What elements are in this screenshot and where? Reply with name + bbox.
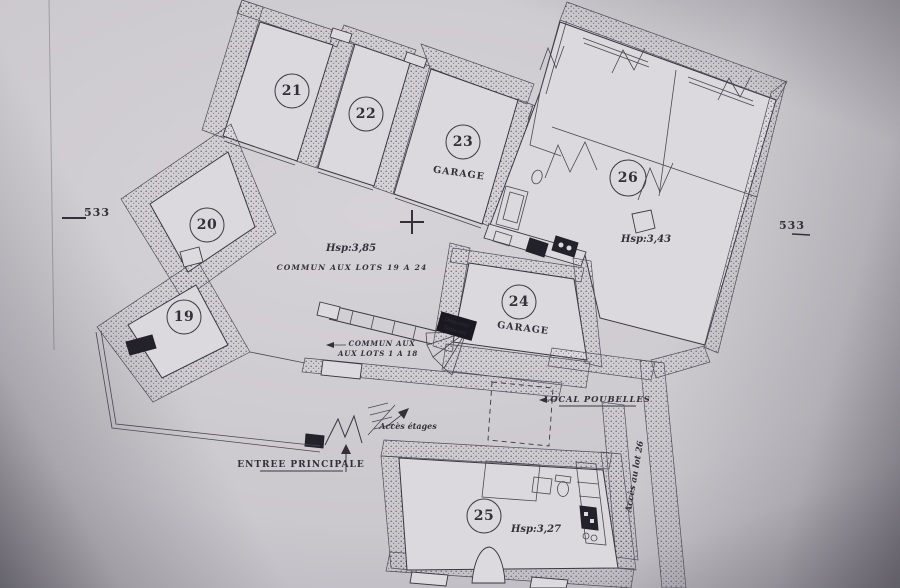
lot-25-ceiling-height: Hsp:3,27 xyxy=(510,524,561,535)
lot-24-number: 24 xyxy=(509,294,529,310)
entrance-step xyxy=(305,434,324,448)
stove-detail xyxy=(590,519,594,523)
survey-cross-icon xyxy=(400,210,424,234)
entrance-door-zigzag-icon xyxy=(325,416,362,445)
lot-26-ceiling-height: Hsp:3,43 xyxy=(620,234,671,245)
stove-detail xyxy=(584,512,588,516)
boundary-line xyxy=(250,352,305,363)
arrow-up-right-icon xyxy=(398,408,409,419)
lot-25: 25 Hsp:3,27 xyxy=(381,440,636,588)
burner-icon xyxy=(559,243,564,248)
stair-tread xyxy=(371,316,374,329)
parcel-mark-left: 533 xyxy=(84,206,110,219)
courtyard-ceiling-height: Hsp:3,85 xyxy=(325,243,376,254)
lot-21-number: 21 xyxy=(282,83,302,99)
sheet-edge-line xyxy=(49,0,54,350)
trash-room-label: LOCAL POUBELLES xyxy=(542,395,650,405)
stair-flight-line xyxy=(333,306,436,331)
lots-19-20: 20 19 xyxy=(97,124,276,402)
arrow-left-icon xyxy=(326,342,334,348)
burner-icon xyxy=(567,246,572,251)
lot-23-number: 23 xyxy=(453,134,473,150)
floor-access-label: Accès étages xyxy=(378,421,437,431)
stair-tread xyxy=(413,326,416,339)
main-entrance-label: ENTREE PRINCIPALE xyxy=(237,460,364,470)
lot-26-number: 26 xyxy=(618,170,638,186)
common-1-18-line2: AUX LOTS 1 A 18 xyxy=(337,349,418,358)
lot-20-number: 20 xyxy=(197,217,217,233)
common-1-18-line1: COMMUN AUX xyxy=(348,339,415,348)
lot-22-number: 22 xyxy=(356,106,376,122)
window-icon xyxy=(410,572,448,586)
courtyard-common-label: COMMUN AUX LOTS 19 A 24 xyxy=(277,263,428,272)
lot-19-number: 19 xyxy=(174,309,194,325)
stove-icon xyxy=(580,506,598,530)
landing xyxy=(317,302,340,320)
stair-tread xyxy=(368,403,388,408)
parcel-mark-dash xyxy=(792,234,810,235)
lot-25-number: 25 xyxy=(474,508,494,524)
stair-tread xyxy=(392,321,395,334)
corridor-right-wall xyxy=(640,360,686,588)
scanned-floor-plan-photo: 21 22 23 GARAGE 20 19 xyxy=(0,0,900,588)
floor-plan-drawing: 21 22 23 GARAGE 20 19 xyxy=(0,0,900,588)
stair-tread xyxy=(350,311,353,324)
floor-access: Accès étages xyxy=(368,403,437,435)
parcel-mark-right: 533 xyxy=(779,219,805,232)
garage-24-room xyxy=(453,263,587,360)
arrow-up-icon xyxy=(341,444,351,454)
